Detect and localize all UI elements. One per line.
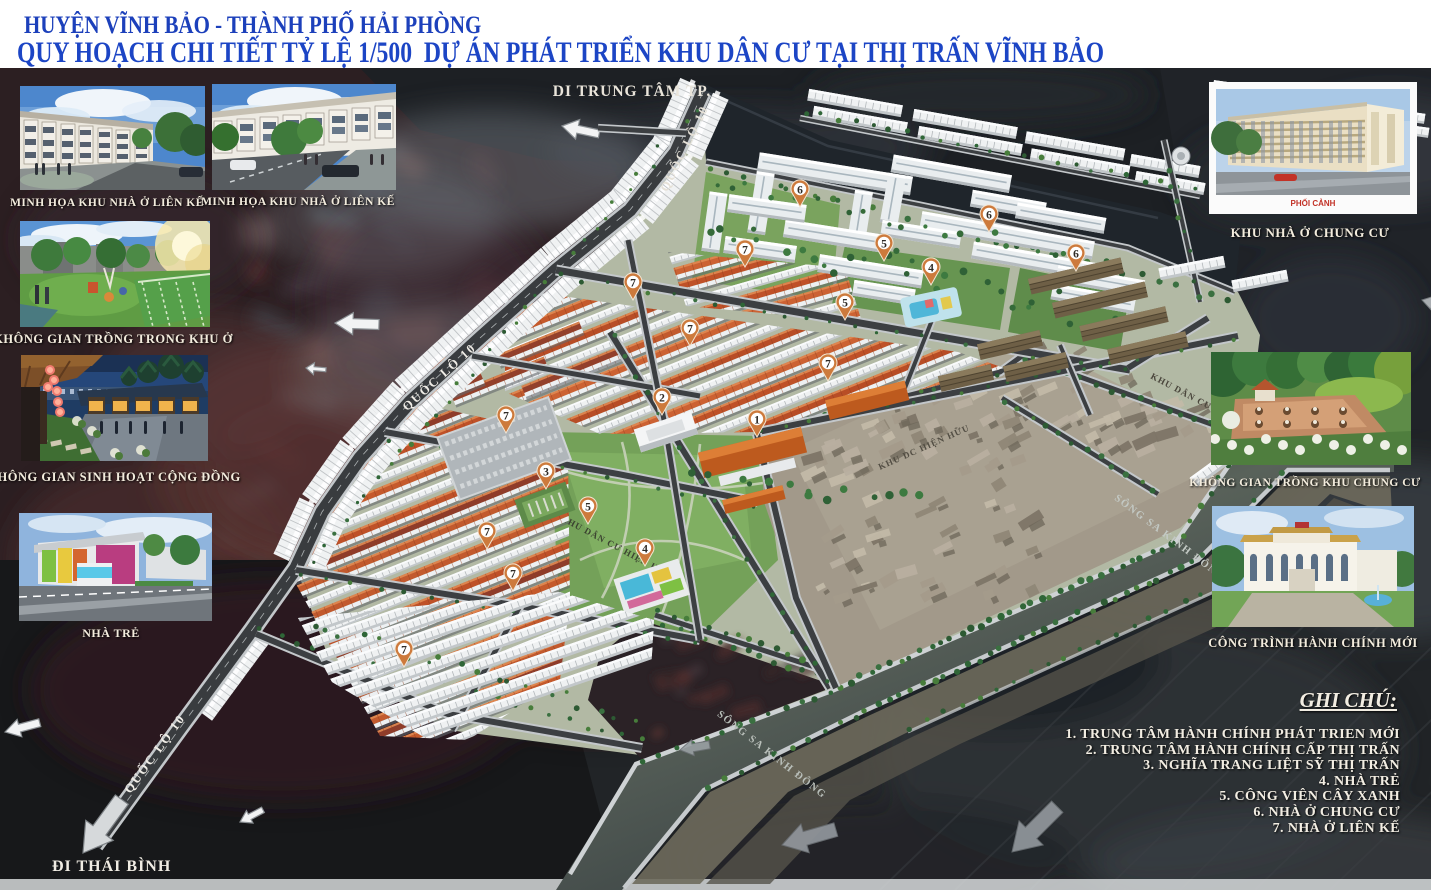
svg-text:7: 7 bbox=[687, 324, 693, 336]
svg-text:6: 6 bbox=[1073, 249, 1079, 261]
svg-text:6: 6 bbox=[986, 210, 992, 222]
svg-text:DI TRUNG TÂM TP.: DI TRUNG TÂM TP. bbox=[553, 83, 711, 100]
svg-text:7: 7 bbox=[510, 569, 516, 581]
svg-text:5: 5 bbox=[585, 502, 591, 514]
svg-text:7: 7 bbox=[503, 411, 509, 423]
svg-text:4: 4 bbox=[642, 544, 648, 556]
svg-text:2: 2 bbox=[659, 393, 665, 405]
svg-text:7: 7 bbox=[630, 278, 636, 290]
svg-text:PHỐI CẢNH: PHỐI CẢNH bbox=[1291, 198, 1336, 208]
svg-text:6: 6 bbox=[797, 185, 803, 197]
svg-text:7: 7 bbox=[401, 645, 407, 657]
svg-text:7: 7 bbox=[742, 245, 748, 257]
svg-text:5: 5 bbox=[881, 239, 887, 251]
svg-text:5: 5 bbox=[842, 298, 848, 310]
svg-text:ĐI THÁI BÌNH: ĐI THÁI BÌNH bbox=[52, 856, 171, 875]
svg-text:1: 1 bbox=[754, 415, 760, 427]
svg-text:7: 7 bbox=[484, 527, 490, 539]
svg-text:3: 3 bbox=[543, 467, 549, 479]
svg-text:7: 7 bbox=[825, 359, 831, 371]
svg-text:4: 4 bbox=[928, 263, 934, 275]
